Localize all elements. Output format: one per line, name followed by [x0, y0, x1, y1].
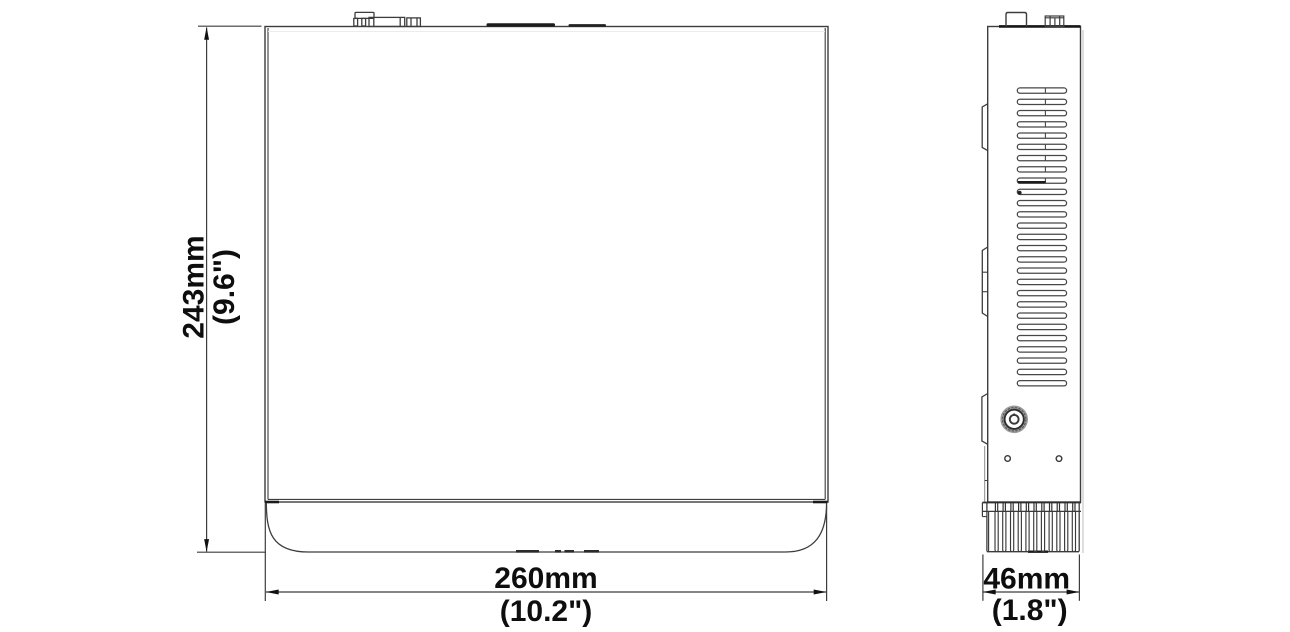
svg-text:(9.6"): (9.6") — [208, 249, 241, 325]
svg-text:260mm: 260mm — [494, 562, 597, 595]
svg-text:(10.2"): (10.2") — [500, 595, 593, 628]
svg-text:(1.8"): (1.8") — [992, 594, 1068, 627]
svg-text:243mm: 243mm — [177, 235, 210, 338]
svg-text:46mm: 46mm — [983, 563, 1070, 596]
